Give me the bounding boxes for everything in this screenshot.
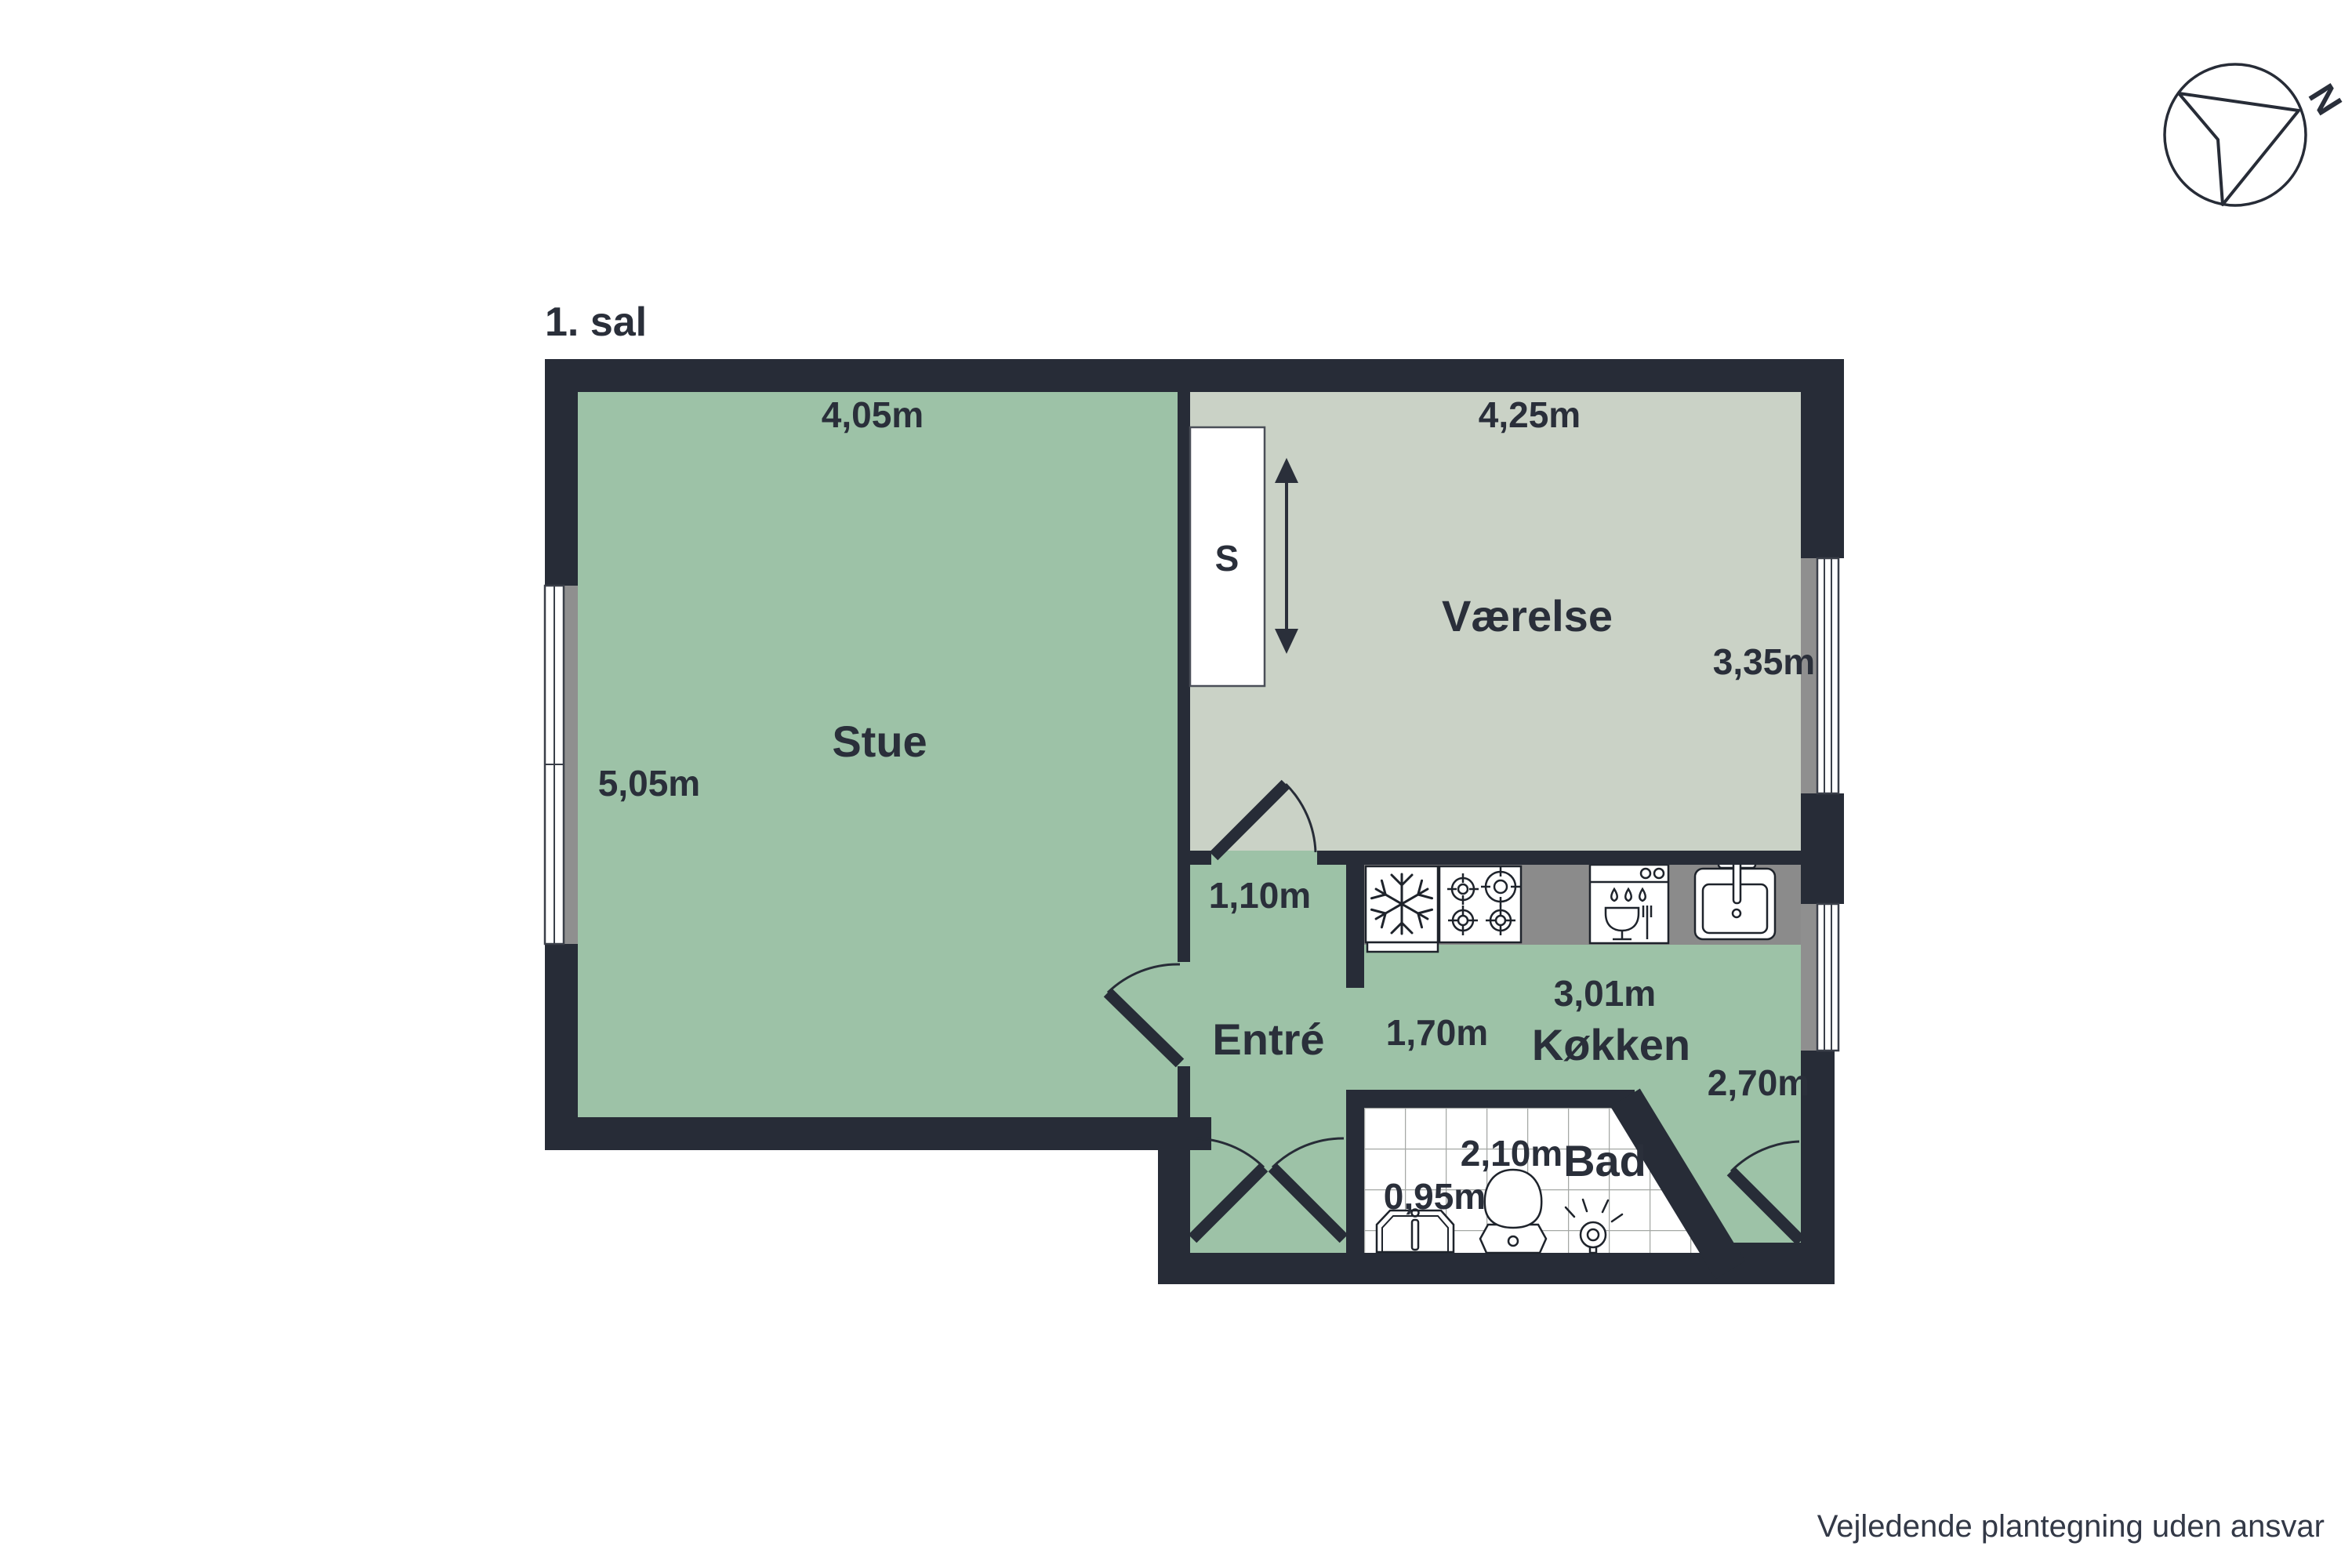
koekken-depth-label: 2,70m [1708,1062,1809,1103]
floorplan-page: 1. sal 4,05m Stue 5,05m 4,25m Værelse 3,… [0,0,2352,1568]
bad-name-label: Bad [1563,1136,1646,1185]
koekken-opening [1346,988,1364,1090]
stue-door-opening [1178,962,1190,1066]
vaerelse-depth-label: 3,35m [1713,641,1815,682]
compass-north-icon: N [2165,64,2350,205]
bad-sink-width-label: 0,95m [1384,1176,1486,1217]
floorplan-canvas: 1. sal 4,05m Stue 5,05m 4,25m Værelse 3,… [0,0,2352,1568]
koekken-width-label: 3,01m [1554,973,1656,1014]
koekken-clearance-label: 1,70m [1386,1012,1488,1053]
stue-name-label: Stue [832,717,927,766]
entre-name-label: Entré [1212,1014,1324,1064]
fridge-icon [1366,866,1438,952]
vaerelse-name-label: Værelse [1442,591,1613,641]
vaerelse-door-opening [1211,851,1317,865]
kitchen-sink-icon [1695,859,1775,939]
stue-depth-label: 5,05m [598,763,700,804]
koekken-window [1801,904,1838,1051]
koekken-name-label: Køkken [1532,1020,1690,1069]
vaerelse-width-label: 4,25m [1479,394,1581,435]
stove-icon [1439,866,1521,942]
kitchen-counter [1364,859,1801,952]
stue-width-label: 4,05m [822,394,924,435]
stue-window [545,586,578,944]
closet-label: S [1215,538,1240,579]
floor-title: 1. sal [545,299,647,345]
compass-n-label: N [2300,77,2350,122]
dishwasher-icon [1590,865,1668,943]
toilet-icon [1480,1170,1546,1253]
bad-width-label: 2,10m [1461,1133,1563,1174]
entre-door-width-label: 1,10m [1209,875,1311,916]
disclaimer-text: Vejledende plantegning uden ansvar [1817,1509,2325,1544]
